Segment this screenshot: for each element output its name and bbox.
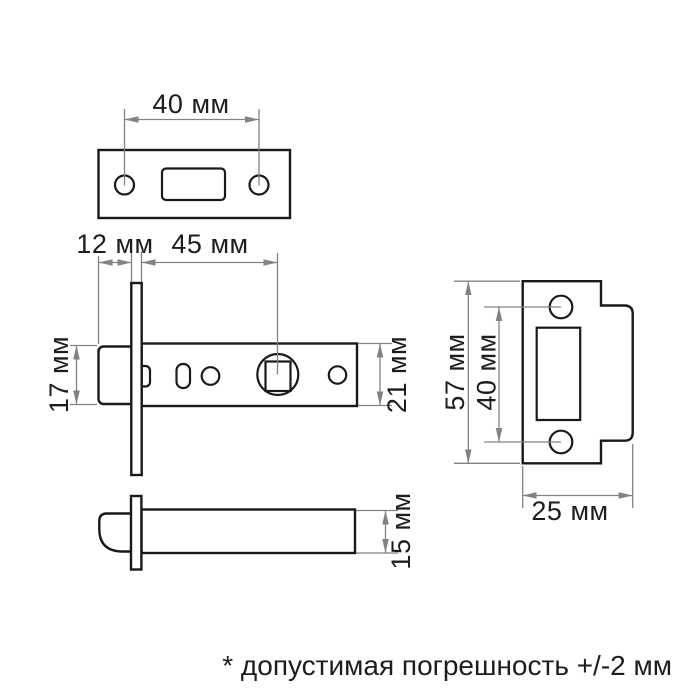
- strike-plate-outline: [523, 281, 633, 463]
- dim-body-height-21mm: 21 мм: [358, 336, 412, 413]
- faceplate-edge-side: [131, 283, 141, 475]
- faceplate-front-view: 40 мм: [99, 89, 291, 218]
- drawing-page: 40 мм 12 мм 45 мм: [0, 0, 700, 700]
- dim-label-front-40mm: 40 мм: [152, 89, 229, 119]
- dim-label-strike-40mm: 40 мм: [472, 333, 502, 410]
- strike-plate-part: [523, 281, 633, 463]
- latch-side-part: [99, 283, 358, 475]
- tolerance-footnote: * допустимая погрешность +/-2 мм: [222, 650, 672, 681]
- latch-body-side: [142, 344, 358, 407]
- latch-body-bottom: [142, 510, 356, 554]
- dim-label-57mm: 57 мм: [440, 333, 470, 410]
- dim-bolt-height-17mm: 17 мм: [44, 336, 97, 413]
- faceplate-front-part: [99, 150, 291, 218]
- dim-label-45mm: 45 мм: [171, 229, 248, 259]
- faceplate-outline: [99, 150, 291, 218]
- dim-label-15mm: 15 мм: [386, 492, 416, 569]
- latch-bottom-part: [99, 496, 355, 570]
- faceplate-edge-bottom: [131, 496, 141, 570]
- latch-bottom-view: 15 мм: [99, 492, 416, 569]
- dim-label-17mm: 17 мм: [44, 336, 74, 413]
- dim-label-25mm: 25 мм: [531, 496, 608, 526]
- latch-side-view: 12 мм 45 мм 17 мм 21 мм: [44, 229, 412, 475]
- dim-label-21mm: 21 мм: [382, 336, 412, 413]
- technical-drawing-canvas: 40 мм 12 мм 45 мм: [0, 0, 700, 700]
- dim-thickness-15mm: 15 мм: [356, 492, 416, 569]
- latch-bolt-bottom: [99, 514, 131, 552]
- strike-plate-view: 57 мм 40 мм 25 мм: [440, 281, 633, 526]
